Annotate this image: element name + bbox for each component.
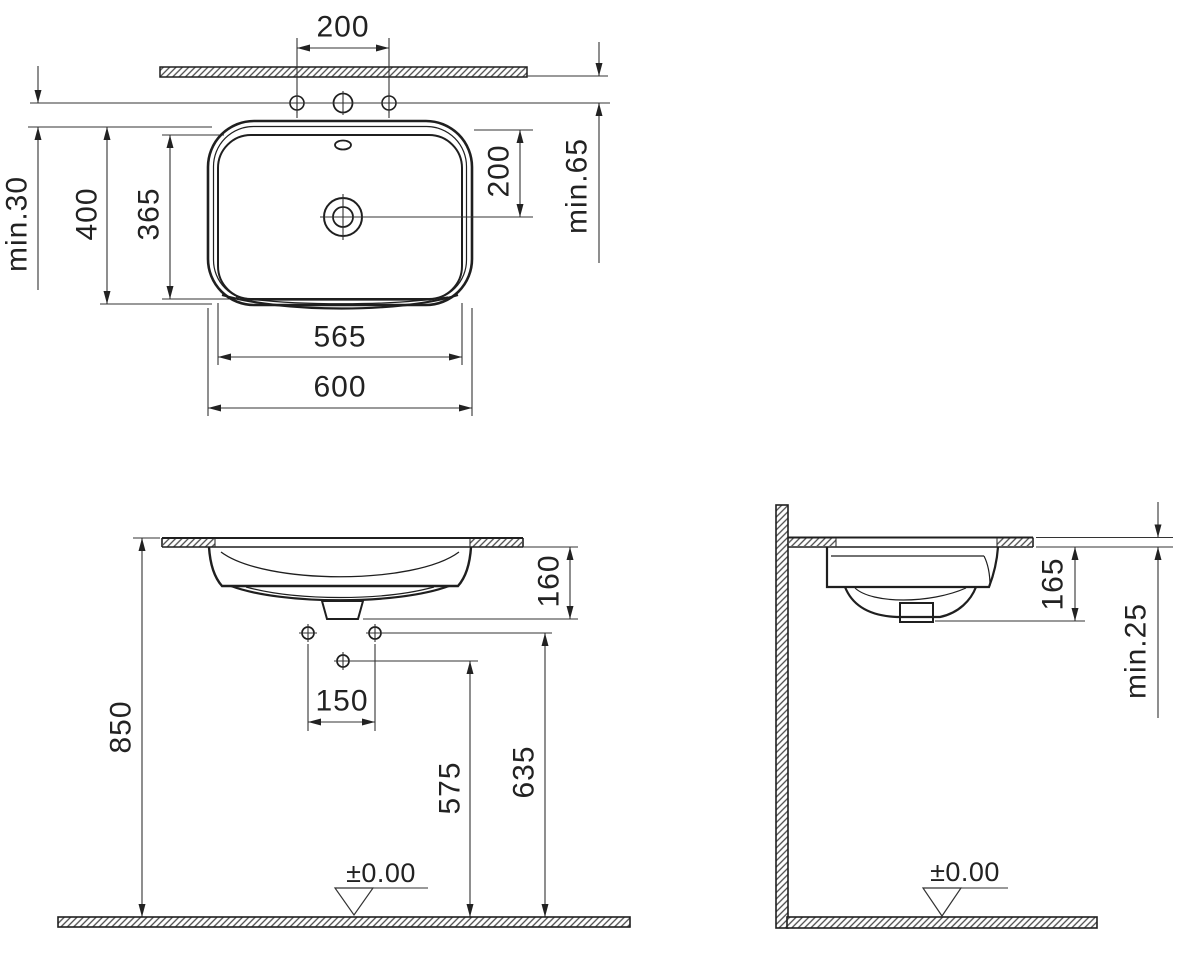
datum-triangle-side — [923, 888, 961, 916]
dim-label-taps-to-rim: min.30 — [1, 176, 34, 272]
dim-label-bowl-depth: 365 — [133, 187, 166, 240]
dim-label-bowl-width: 565 — [313, 321, 366, 354]
datum-label-side: ±0.00 — [930, 857, 1000, 887]
floor-front — [58, 917, 630, 927]
basin-front-profile — [209, 547, 471, 619]
technical-drawing-washbasin: 200 min.65 min.30 400 365 — [0, 0, 1200, 969]
dim-outer-depth: 400 — [71, 127, 108, 304]
drain-plan — [320, 194, 366, 240]
counter-front — [162, 538, 523, 547]
datum-side: ±0.00 — [923, 857, 1008, 916]
dim-label-outer-depth: 400 — [71, 187, 104, 240]
drain-outlet-front — [322, 601, 363, 619]
dim-label-basin-depth-side: 165 — [1037, 557, 1070, 610]
dim-counter-thickness: min.25 — [1120, 502, 1159, 718]
front-view: 160 150 635 575 — [58, 538, 630, 927]
datum-triangle-front — [335, 888, 373, 915]
counter-hatch-right — [470, 539, 522, 547]
dim-label-outer-width: 600 — [313, 371, 366, 404]
supply-holes-front — [299, 624, 384, 670]
floor-side — [787, 917, 1097, 928]
side-view: 165 min.25 ±0.00 — [776, 502, 1173, 928]
dim-label-wall-to-taps: min.65 — [561, 138, 594, 234]
basin-side-profile — [827, 547, 998, 622]
tap-holes-plan — [287, 91, 399, 115]
overflow-hole — [335, 141, 351, 150]
dim-taps-to-rim: min.30 — [1, 66, 39, 290]
dim-drain-offset: 200 — [362, 130, 533, 217]
plan-view: 200 min.65 min.30 400 365 — [1, 11, 611, 417]
wall-side — [776, 505, 788, 928]
counter-side — [788, 538, 1033, 548]
dim-label-drain-offset: 200 — [483, 144, 516, 197]
wall-section-strip — [160, 67, 527, 77]
dim-supply-spacing: 150 — [308, 644, 375, 731]
dim-label-counter-thickness: min.25 — [1120, 603, 1153, 699]
datum-front: ±0.00 — [335, 858, 428, 915]
counter-hatch-side-right — [997, 538, 1032, 546]
dim-label-counter-height: 850 — [105, 700, 138, 753]
drawing-canvas: 200 min.65 min.30 400 365 — [0, 0, 1200, 969]
drain-outlet-side — [900, 603, 933, 622]
counter-hatch-side-left — [789, 538, 836, 546]
dim-bowl-depth: 365 — [133, 135, 171, 299]
dim-label-basin-depth-front: 160 — [533, 554, 566, 607]
dim-counter-height: 850 — [105, 538, 161, 917]
dim-label-drain-height: 575 — [434, 761, 467, 814]
dim-bowl-width: 565 — [218, 303, 462, 365]
dim-wall-to-taps: min.65 — [561, 42, 600, 263]
dim-label-tap-spacing: 200 — [316, 11, 369, 44]
dim-label-supply-height: 635 — [508, 745, 541, 798]
datum-label-front: ±0.00 — [346, 858, 416, 888]
dim-label-supply-spacing: 150 — [315, 685, 368, 718]
counter-hatch-left — [163, 539, 215, 547]
